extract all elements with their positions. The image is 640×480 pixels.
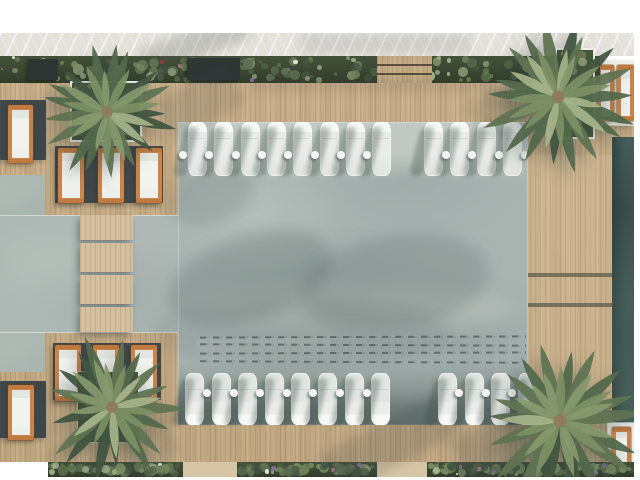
side-table-dot: [283, 389, 291, 397]
planting-strip-bottom: [237, 462, 377, 477]
plant-blob: [364, 74, 372, 82]
plant-blob: [447, 72, 450, 75]
bridge-plank: [80, 275, 133, 304]
side-table-dot: [258, 151, 266, 159]
plant-blob: [351, 58, 355, 62]
screenshot-canvas: [0, 0, 640, 480]
plant-blob: [290, 70, 300, 80]
planter-deck-seam: [377, 73, 432, 75]
in-pool-lounger: [372, 122, 391, 176]
plant-blob: [351, 70, 360, 79]
plant-blob: [15, 57, 20, 62]
flower-dot: [250, 78, 254, 82]
plant-blob: [270, 75, 276, 81]
flower-dot: [1, 68, 4, 71]
palm-tree: [24, 319, 200, 477]
side-table-dot: [363, 389, 371, 397]
plant-blob: [459, 78, 463, 82]
side-table-dot: [203, 389, 211, 397]
side-table-dot: [232, 151, 240, 159]
plant-blob: [305, 76, 310, 81]
side-table-dot: [311, 151, 319, 159]
planter-box: [187, 58, 240, 80]
palm-tree: [21, 33, 193, 198]
plant-blob: [334, 72, 338, 76]
plant-blob: [302, 59, 311, 68]
deck-gap-line: [528, 273, 612, 277]
bridge-plank: [80, 215, 133, 240]
plant-blob: [447, 58, 451, 62]
side-table-dot: [230, 389, 238, 397]
deck-gap-line: [528, 303, 612, 307]
flower-dot: [271, 466, 275, 470]
planter-deck-block: [377, 56, 432, 83]
palm-tree: [464, 33, 634, 191]
plant-blob: [299, 465, 309, 475]
deck-light-patch: [377, 462, 427, 477]
side-table-dot: [336, 389, 344, 397]
plant-blob: [248, 470, 255, 477]
plant-blob: [440, 466, 443, 469]
plant-blob: [261, 63, 268, 70]
pool-aerial-render: [0, 33, 634, 477]
plant-blob: [361, 468, 370, 477]
planter-deck-seam: [377, 64, 432, 66]
plant-blob: [346, 56, 350, 60]
plant-blob: [12, 68, 18, 74]
bridge-plank: [80, 243, 133, 272]
flower-dot: [293, 60, 297, 64]
plant-blob: [316, 77, 321, 82]
plant-blob: [284, 466, 295, 477]
side-table-dot: [337, 151, 345, 159]
palm-tree: [462, 323, 634, 477]
plant-blob: [317, 65, 322, 70]
plant-blob: [243, 59, 253, 69]
side-table-dot: [442, 151, 450, 159]
plant-blob: [281, 68, 288, 75]
flower-dot: [265, 469, 269, 473]
plant-blob: [310, 75, 313, 78]
plant-blob: [435, 70, 440, 75]
plant-blob: [277, 63, 281, 67]
plant-blob: [433, 467, 440, 474]
in-pool-lounger: [371, 373, 390, 425]
